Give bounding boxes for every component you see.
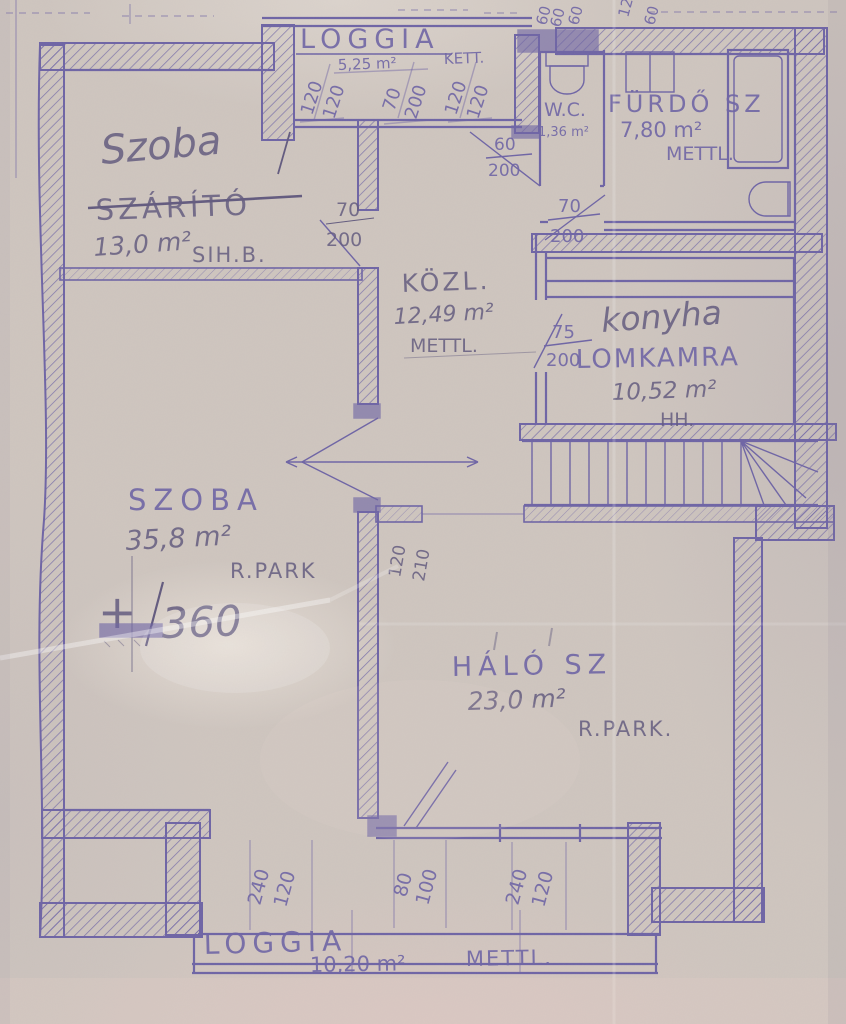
floorplan-drawing: + 360 LOGGIA 5,25 m² KETT. Szoba SZÁRÍTÓ…	[0, 0, 846, 1024]
floorplan-photo: + 360 LOGGIA 5,25 m² KETT. Szoba SZÁRÍTÓ…	[0, 0, 846, 1024]
paper-grain	[0, 0, 846, 1024]
